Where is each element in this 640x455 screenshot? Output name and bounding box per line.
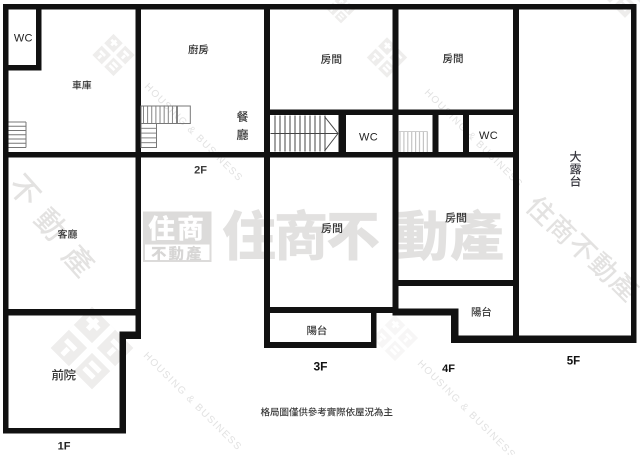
svg-text:2F: 2F xyxy=(194,165,207,177)
svg-text:4F: 4F xyxy=(442,363,455,375)
svg-text:3F: 3F xyxy=(313,360,327,374)
svg-text:WC: WC xyxy=(479,130,498,142)
svg-text:1F: 1F xyxy=(58,441,71,453)
svg-text:5F: 5F xyxy=(567,356,580,368)
svg-text:WC: WC xyxy=(359,132,378,144)
svg-text:WC: WC xyxy=(14,33,33,45)
